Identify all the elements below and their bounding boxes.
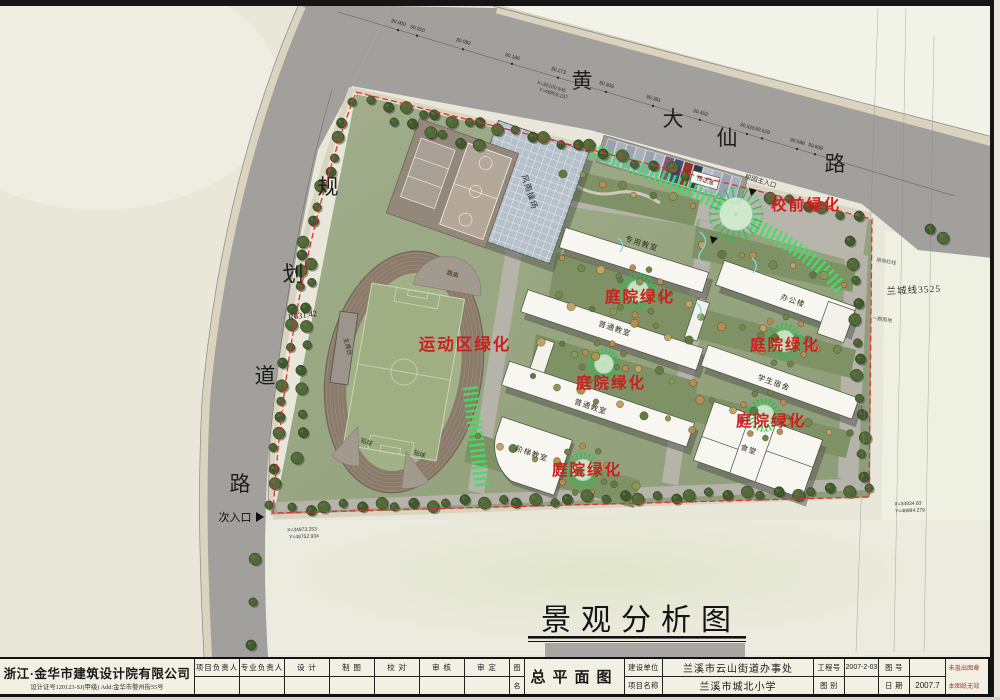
client-value: 兰溪市云山街道办事处 xyxy=(663,659,813,676)
role-cell: 校 对 xyxy=(375,659,420,694)
title-underline-thin xyxy=(528,641,746,642)
client-project-cell: 建设单位兰溪市云山街道办事处 项目名称兰溪市城北小学 xyxy=(625,659,814,694)
signature-area xyxy=(240,677,284,694)
signature-area xyxy=(195,677,239,694)
road-name-char: 仙 xyxy=(717,126,738,150)
title-block: 浙江·金华市建筑设计院有限公司 设计证号120123-SJ(甲级) Add:金华… xyxy=(0,657,990,697)
coordinate-label: Y=48752.934 xyxy=(289,533,319,540)
signature-area xyxy=(330,677,374,694)
drawing-title: 景观分析图 xyxy=(541,604,741,637)
road-name-char: 道 xyxy=(255,364,276,388)
drawing-name-label-cell: 图 名 xyxy=(510,659,525,694)
stamp-note-1: 未盖出图章 xyxy=(946,659,982,677)
road-name-char: 黄 xyxy=(572,69,593,93)
project-no-value: 2007-2-03 xyxy=(845,659,878,676)
drawing-name-value: 总平面图 xyxy=(525,659,625,694)
signature-area xyxy=(420,677,464,694)
stamp-note-2: 本图纸无效 xyxy=(946,677,982,695)
client-label: 建设单位 xyxy=(625,659,663,676)
project-value: 兰溪市城北小学 xyxy=(663,677,813,694)
signature-area xyxy=(465,677,509,694)
role-cell: 项目负责人 xyxy=(195,659,240,694)
title-underline xyxy=(528,636,746,639)
front-green-label: 校前绿化 xyxy=(771,195,841,214)
role-cell: 制 图 xyxy=(330,659,375,694)
coordinate-label: X=34973.253 xyxy=(287,526,317,533)
bottom-road-strip xyxy=(545,643,745,657)
courtyard-green-label: 庭院绿化 xyxy=(552,460,622,479)
site-plan-sheet: 黄 大 仙 路 规 划 道 路 R631.42 次入口 校园主入口 兰城线352… xyxy=(0,0,1000,700)
plan-canvas: 黄 大 仙 路 规 划 道 路 R631.42 次入口 校园主入口 兰城线352… xyxy=(0,0,1000,700)
signature-area xyxy=(285,677,329,694)
coordinate-label: Y=48994.279 xyxy=(895,507,925,514)
sheet-no-value xyxy=(910,659,945,676)
company-name: 浙江·金华市建筑设计院有限公司 xyxy=(4,663,191,682)
courtyard-green-label: 庭院绿化 xyxy=(736,411,806,430)
frame-right xyxy=(990,0,994,700)
secondary-entrance-label: 次入口 xyxy=(219,510,252,524)
coordinate-label: X=34934.83 xyxy=(894,501,922,508)
role-cell: 审 定 xyxy=(465,659,510,694)
category-value xyxy=(845,677,878,694)
road-name-char: 划 xyxy=(283,262,304,286)
road-name-char: 路 xyxy=(230,472,251,496)
courtyard-green-label: 庭院绿化 xyxy=(576,373,646,392)
courtyard-green-label: 庭院绿化 xyxy=(605,287,675,306)
road-name-char: 路 xyxy=(825,152,846,176)
road-name-char: 规 xyxy=(318,175,339,199)
sports-green-label: 运动区绿化 xyxy=(419,334,512,354)
date-value: 2007.7 xyxy=(910,677,945,694)
role-cell: 审 核 xyxy=(420,659,465,694)
role-cell: 设 计 xyxy=(285,659,330,694)
project-label: 项目名称 xyxy=(625,677,663,694)
stamp-note-cell: 未盖出图章 本图纸无效 xyxy=(946,659,982,694)
project-number-cell: 工程号2007-2-03 图 别 xyxy=(814,659,879,694)
signature-area xyxy=(375,677,419,694)
company-subtitle: 设计证号120123-SJ(甲级) Add:金华市婺州街55号 xyxy=(30,682,163,691)
frame-top xyxy=(0,0,993,6)
courtyard-green-label: 庭院绿化 xyxy=(750,335,820,354)
road-name-char: 大 xyxy=(663,107,684,131)
role-cell: 专业负责人 xyxy=(240,659,285,694)
company-cell: 浙江·金华市建筑设计院有限公司 设计证号120123-SJ(甲级) Add:金华… xyxy=(0,659,195,694)
sheet-number-cell: 图 号 日 期2007.7 xyxy=(879,659,946,694)
